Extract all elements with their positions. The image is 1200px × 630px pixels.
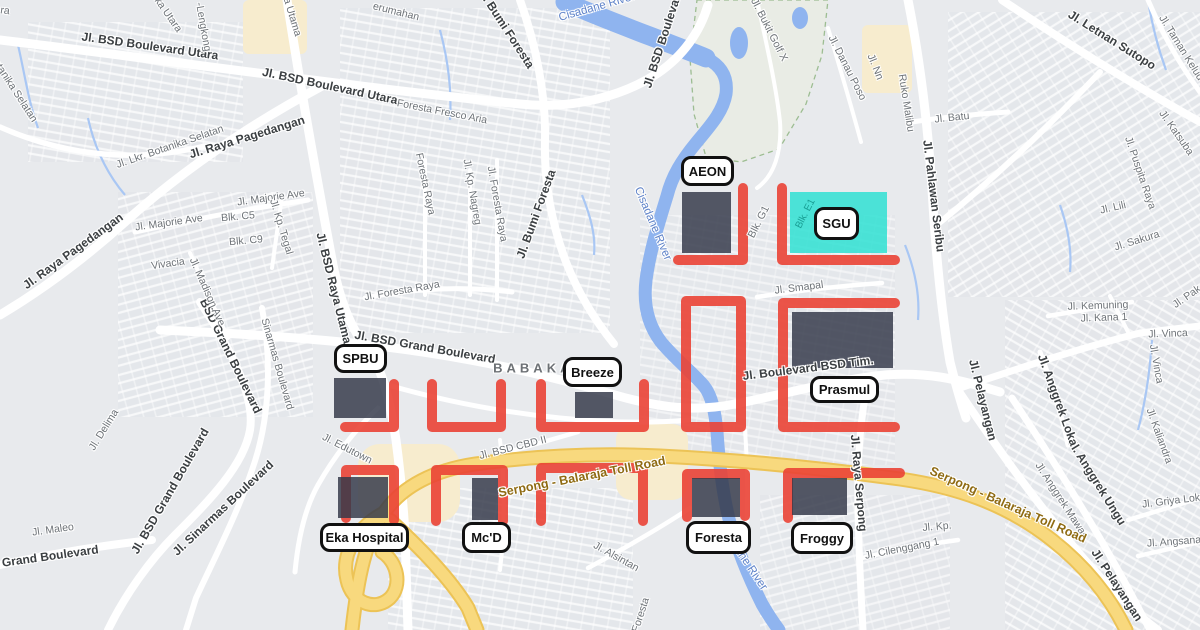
building-eka-hospital [338, 477, 388, 518]
marker-label-spbu: SPBU [342, 351, 378, 366]
marker-aeon[interactable]: AEON [681, 156, 734, 186]
map-screenshot: Jl. BSD Boulevard UtaraJl. BSD Boulevard… [0, 0, 1200, 630]
marker-label-sgu: SGU [822, 216, 850, 231]
annotation-overlay [0, 0, 1200, 630]
marker-breeze[interactable]: Breeze [563, 357, 622, 387]
marker-label-mcd: Mc'D [471, 530, 502, 545]
route-annotation-5 [432, 384, 501, 427]
building-foresta [692, 478, 740, 517]
building-breeze [575, 392, 613, 418]
marker-foresta[interactable]: Foresta [686, 521, 751, 554]
marker-spbu[interactable]: SPBU [334, 344, 387, 373]
marker-eka-hospital[interactable]: Eka Hospital [320, 523, 409, 552]
marker-mcd[interactable]: Mc'D [462, 522, 511, 553]
route-annotation-9 [541, 468, 643, 521]
marker-label-prasmul: Prasmul [819, 382, 870, 397]
building-prasmul [792, 312, 893, 368]
marker-sgu[interactable]: SGU [814, 207, 859, 240]
building-aeon [682, 192, 731, 253]
marker-label-aeon: AEON [689, 164, 727, 179]
marker-label-foresta: Foresta [695, 530, 742, 545]
marker-froggy[interactable]: Froggy [791, 522, 853, 554]
route-annotation-2 [686, 301, 741, 427]
marker-label-breeze: Breeze [571, 365, 614, 380]
building-mcd [472, 478, 498, 520]
building-spbu [334, 378, 386, 418]
marker-prasmul[interactable]: Prasmul [810, 376, 879, 403]
marker-label-eka-hospital: Eka Hospital [325, 530, 403, 545]
building-froggy [792, 478, 847, 515]
marker-label-froggy: Froggy [800, 531, 844, 546]
